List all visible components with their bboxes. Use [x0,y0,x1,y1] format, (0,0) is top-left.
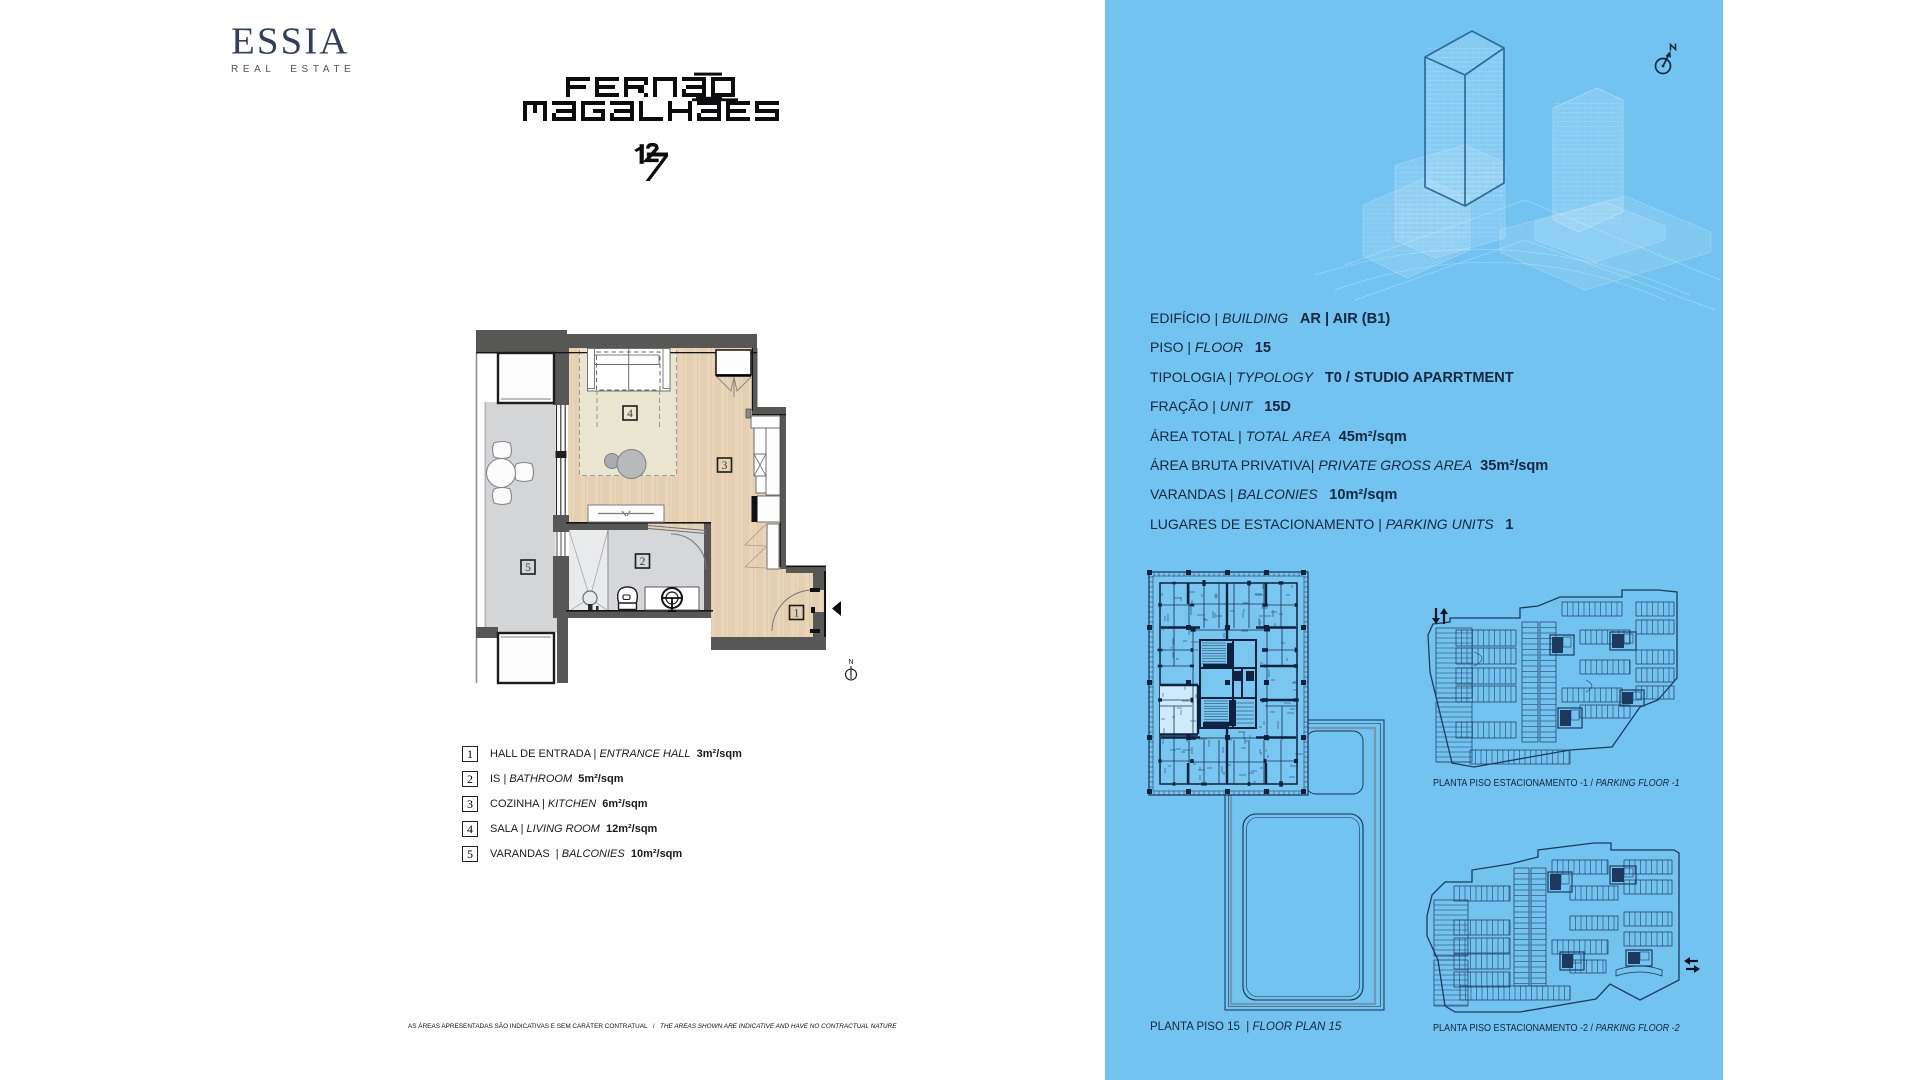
svg-text:2: 2 [640,556,646,568]
svg-text:5: 5 [525,562,531,574]
svg-text:4: 4 [627,408,633,420]
svg-text:3: 3 [722,460,728,472]
svg-text:N: N [848,659,853,666]
svg-text:1: 1 [794,608,800,620]
